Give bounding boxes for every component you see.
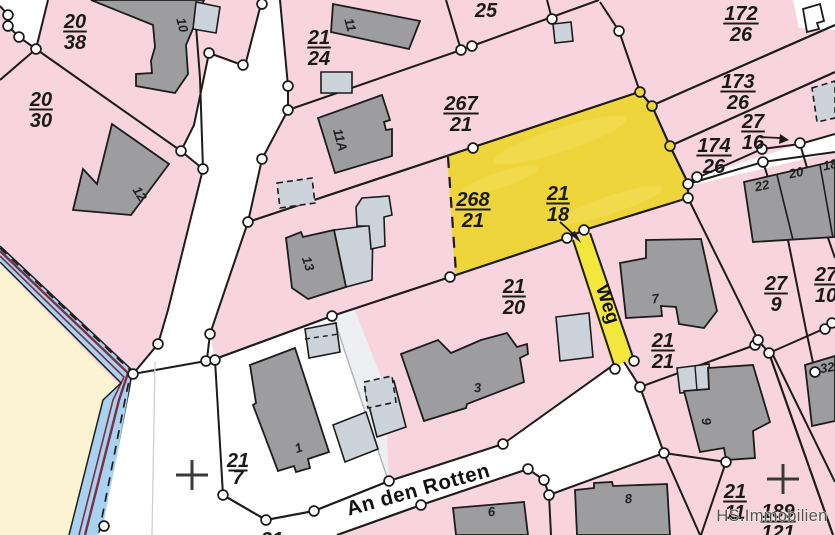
svg-text:20: 20 <box>502 297 525 319</box>
svg-text:HS.Immobilien: HS.Immobilien <box>716 507 827 525</box>
svg-text:21: 21 <box>461 210 484 232</box>
svg-text:174: 174 <box>697 135 730 157</box>
svg-text:18: 18 <box>547 204 570 226</box>
svg-text:25: 25 <box>474 0 498 22</box>
svg-text:173: 173 <box>721 71 754 93</box>
svg-text:27: 27 <box>814 264 835 286</box>
svg-text:38: 38 <box>64 32 87 54</box>
svg-text:9: 9 <box>770 294 782 316</box>
svg-text:27: 27 <box>741 111 765 133</box>
svg-text:7: 7 <box>232 467 244 489</box>
svg-text:21: 21 <box>260 529 283 535</box>
svg-text:267: 267 <box>443 93 478 115</box>
svg-text:10: 10 <box>815 285 835 307</box>
svg-text:27: 27 <box>764 273 788 295</box>
svg-text:21: 21 <box>723 481 746 503</box>
svg-text:26: 26 <box>729 24 753 46</box>
svg-text:20: 20 <box>63 11 86 33</box>
svg-text:21: 21 <box>651 330 674 352</box>
svg-text:21: 21 <box>651 351 674 373</box>
svg-text:26: 26 <box>702 156 726 178</box>
svg-text:32: 32 <box>819 359 835 376</box>
svg-text:21: 21 <box>502 276 525 298</box>
svg-text:172: 172 <box>724 3 757 25</box>
svg-text:21: 21 <box>546 183 569 205</box>
svg-text:30: 30 <box>30 110 52 132</box>
svg-text:20: 20 <box>29 89 52 111</box>
svg-text:268: 268 <box>455 189 490 211</box>
svg-text:16: 16 <box>742 132 765 154</box>
svg-text:18: 18 <box>821 156 835 174</box>
svg-text:24: 24 <box>307 48 330 70</box>
svg-text:21: 21 <box>449 114 472 136</box>
svg-text:21: 21 <box>307 27 330 49</box>
